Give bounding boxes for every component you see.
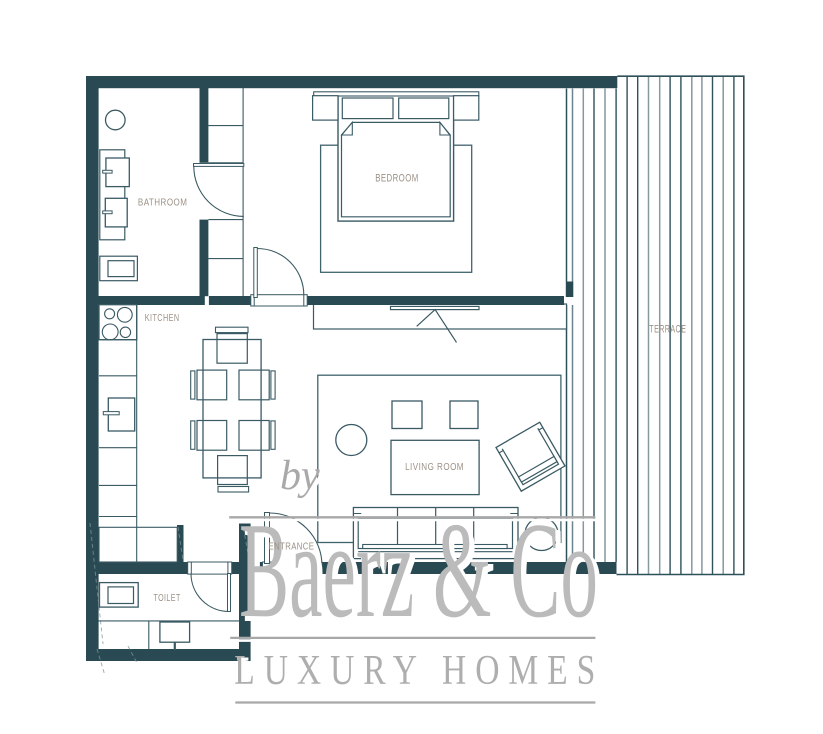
svg-text:TERRACE: TERRACE [649, 324, 686, 336]
svg-text:by: by [280, 453, 320, 499]
svg-text:ENTRANCE: ENTRANCE [269, 542, 315, 553]
svg-text:LIVING ROOM: LIVING ROOM [405, 462, 464, 473]
svg-text:TOILET: TOILET [154, 593, 181, 604]
svg-text:BATHROOM: BATHROOM [138, 197, 188, 208]
svg-text:KITCHEN: KITCHEN [145, 313, 180, 324]
svg-text:Baerz & Co: Baerz & Co [239, 494, 598, 646]
svg-text:BEDROOM: BEDROOM [375, 172, 419, 184]
